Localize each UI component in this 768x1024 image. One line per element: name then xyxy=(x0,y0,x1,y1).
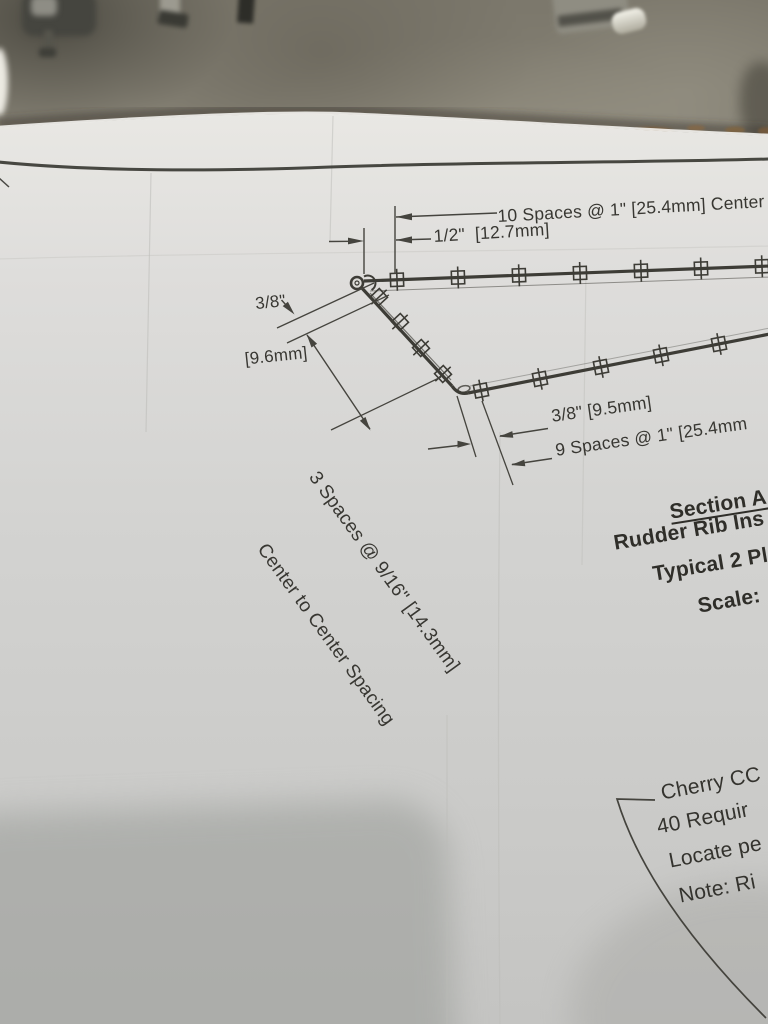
rib-nose-eyelet xyxy=(351,277,363,289)
photo-of-technical-drawing: 10 Spaces @ 1" [25.4mm] Center to Ce 1/2… xyxy=(0,0,768,1024)
flange-upper-line1: 3/8" xyxy=(230,289,311,315)
paper-shadow-bottom-left xyxy=(0,797,458,1024)
flange-upper-line2: [9.6mm] xyxy=(235,343,316,369)
dimension-flange-upper-label: 3/8" [9.6mm] xyxy=(226,254,321,406)
